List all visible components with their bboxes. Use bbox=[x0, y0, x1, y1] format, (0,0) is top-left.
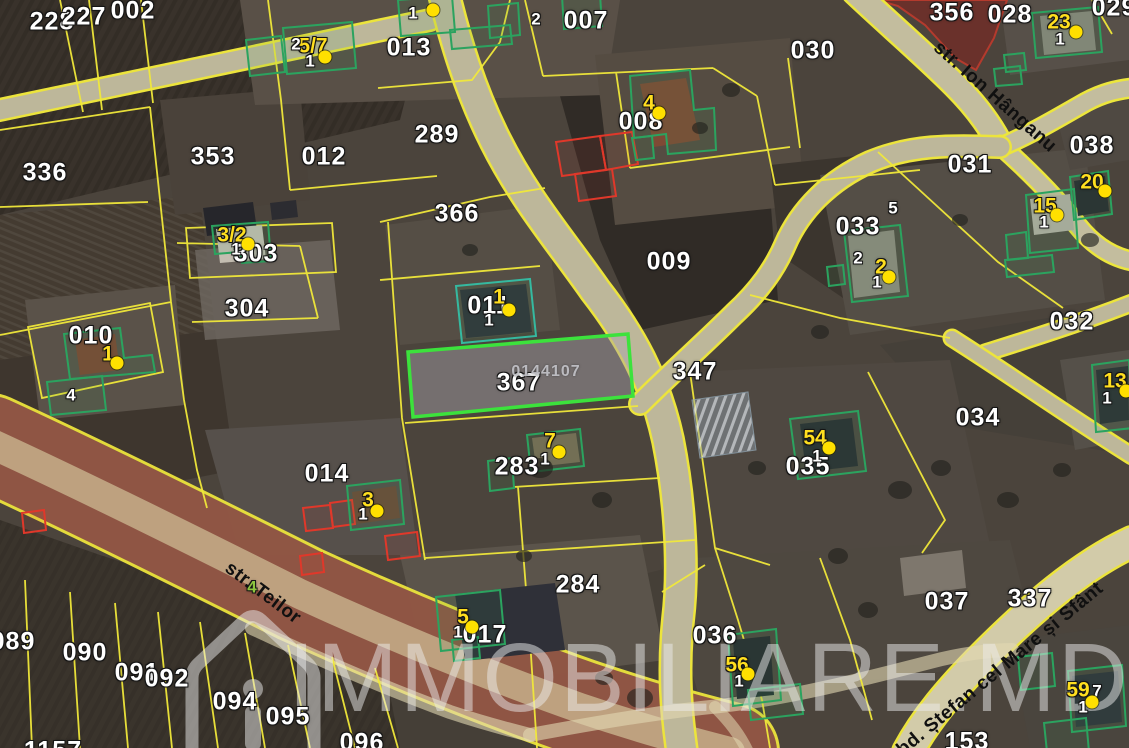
parcel-marker-dot bbox=[823, 442, 836, 455]
parcel-marker-dot bbox=[1051, 209, 1064, 222]
parcel-marker-dot bbox=[653, 107, 666, 120]
parcel-marker-dot bbox=[883, 271, 896, 284]
cadastral-map[interactable]: IMMOBILIARE.MD 2282270020130073560280290… bbox=[0, 0, 1129, 748]
parcel-marker-dot bbox=[553, 446, 566, 459]
parcel-marker-dot bbox=[319, 51, 332, 64]
parcel-marker-dot bbox=[503, 304, 516, 317]
greenhouse bbox=[692, 392, 756, 458]
parcel-marker-dot bbox=[242, 238, 255, 251]
selected-parcel-polygon bbox=[408, 334, 633, 417]
parcel-marker-dot bbox=[1099, 185, 1112, 198]
parcel-marker-dot bbox=[111, 357, 124, 370]
parcel-marker-dot bbox=[1120, 385, 1129, 398]
parcel-marker-dot bbox=[466, 621, 479, 634]
parcel-marker-dot bbox=[371, 505, 384, 518]
parcel-marker-dot bbox=[1086, 696, 1099, 709]
parcel-marker-dot bbox=[427, 4, 440, 17]
watermark-text: IMMOBILIARE.MD bbox=[288, 629, 1129, 726]
parcel-marker-dot bbox=[1070, 26, 1083, 39]
parcel-marker-dot bbox=[742, 668, 755, 681]
